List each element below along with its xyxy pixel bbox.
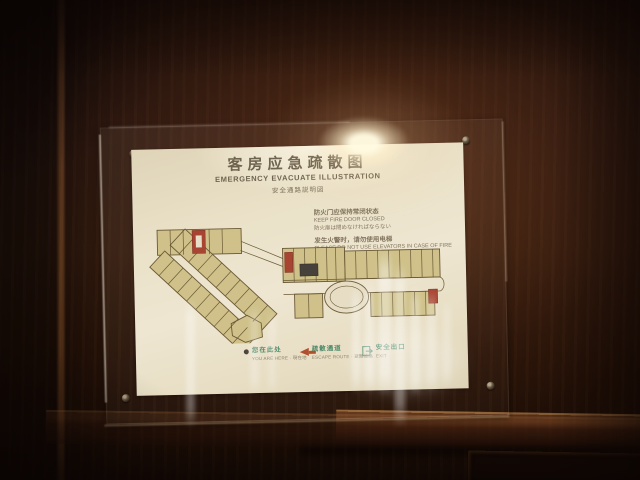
legend-exit: 安全出口 EXIT <box>362 344 406 359</box>
door-panel-corner <box>468 450 640 480</box>
location-dot-icon <box>244 349 249 354</box>
exit-icon <box>362 345 373 356</box>
frame-screw <box>462 136 470 144</box>
legend-sub: YOU ARE HERE · 現在地 <box>252 355 307 362</box>
floor-plan <box>143 215 448 346</box>
photo-scene: 客房应急疏散图 EMERGENCY EVACUATE ILLUSTRATION … <box>0 0 640 480</box>
legend-label: 安全出口 <box>376 344 406 352</box>
legend-sub: EXIT <box>376 353 406 359</box>
elevator-core <box>300 264 318 276</box>
frame-screw <box>487 382 495 390</box>
escape-route-arrow-icon <box>300 348 309 356</box>
acrylic-frame: 客房应急疏散图 EMERGENCY EVACUATE ILLUSTRATION … <box>100 118 510 424</box>
sign-title-block: 客房应急疏散图 EMERGENCY EVACUATE ILLUSTRATION … <box>131 151 464 198</box>
legend-label: 您在此处 <box>252 346 307 355</box>
legend-you-are-here: 您在此处 YOU ARE HERE · 現在地 <box>244 346 307 362</box>
evacuation-sign: 客房应急疏散图 EMERGENCY EVACUATE ILLUSTRATION … <box>131 142 468 395</box>
frame-screw <box>122 394 130 402</box>
